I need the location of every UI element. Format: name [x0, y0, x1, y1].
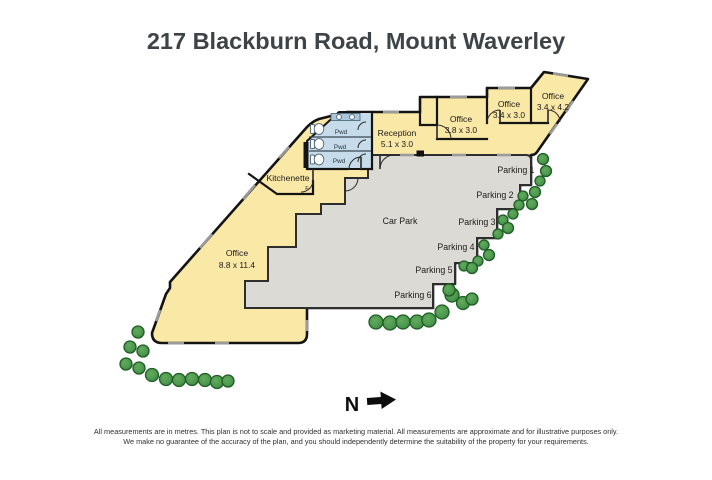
- north-arrow-icon: [366, 390, 396, 409]
- floorplan-canvas: Pwd Pwd Pwd: [0, 0, 712, 480]
- vanity-bench: [331, 114, 360, 121]
- parking-space-label: Parking 6: [394, 290, 431, 300]
- basin-icon: [350, 115, 355, 120]
- powder-label: Pwd: [333, 158, 346, 165]
- floorplan-page: 217 Blackburn Road, Mount Waverley: [0, 0, 712, 480]
- toilet-icon: [311, 124, 324, 135]
- disclaimer: All measurements are in metres. This pla…: [0, 427, 712, 447]
- parking-space-label: Parking 3: [458, 217, 495, 227]
- north-indicator: N: [345, 390, 397, 416]
- disclaimer-line-1: All measurements are in metres. This pla…: [0, 427, 712, 437]
- office-a-label: Office: [450, 114, 473, 124]
- parking-space-label: Parking 2: [476, 190, 513, 200]
- door-slab: [417, 151, 425, 157]
- fridge-label: F: [305, 186, 309, 192]
- reception-label: Reception: [378, 128, 417, 138]
- parking-space-label: Parking 5: [415, 265, 452, 275]
- office-b-label: Office: [498, 99, 521, 109]
- north-label: N: [345, 394, 359, 416]
- main-office-dims: 8.8 x 11.4: [219, 260, 256, 270]
- powder-label: Pwd: [335, 129, 348, 136]
- powder-label: Pwd: [334, 144, 347, 151]
- main-office-label: Office: [226, 248, 249, 258]
- disclaimer-line-2: We make no guarantee of the accuracy of …: [0, 437, 712, 447]
- toilet-icon: [311, 154, 324, 165]
- kitchenette-label: Kitchenette: [267, 173, 310, 183]
- parking-space-label: Parking 4: [437, 242, 474, 252]
- office-c-dims: 3.4 x 4.2: [537, 102, 569, 112]
- parking-space-label: Parking 1: [497, 165, 534, 175]
- office-c-label: Office: [542, 91, 565, 101]
- basin-icon: [337, 115, 342, 120]
- office-a-dims: 3.8 x 3.0: [445, 125, 477, 135]
- carpark-label: Car Park: [383, 216, 418, 226]
- toilet-icon: [311, 139, 324, 150]
- reception-dims: 5.1 x 3.0: [381, 139, 413, 149]
- office-b-dims: 3.4 x 3.0: [493, 110, 525, 120]
